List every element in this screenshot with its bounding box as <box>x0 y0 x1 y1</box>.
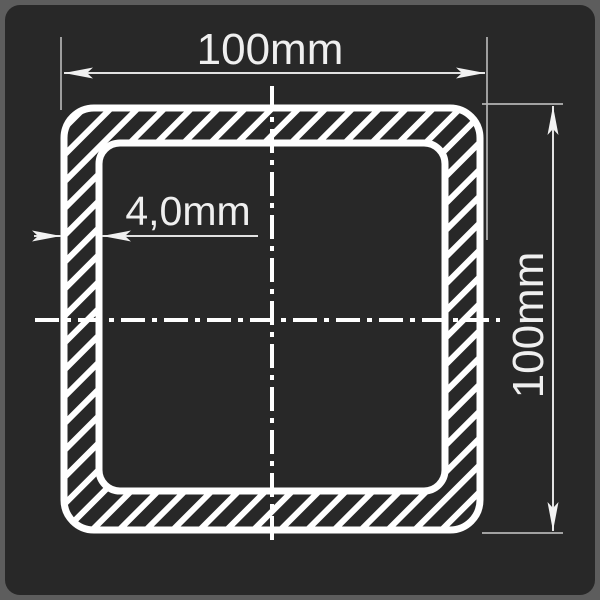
thickness-dimension-label: 4,0mm <box>125 188 250 234</box>
width-dimension-label: 100mm <box>197 25 344 74</box>
height-dimension-label: 100mm <box>504 252 553 399</box>
section-drawing: 100mm 100mm 4,0mm <box>0 0 600 600</box>
